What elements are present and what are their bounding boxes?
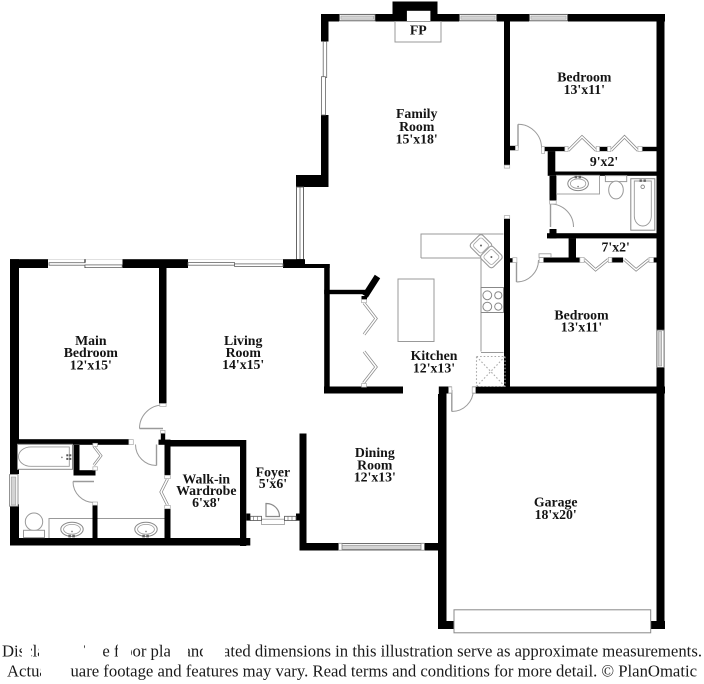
svg-text:13'x11': 13'x11' [564,82,605,97]
svg-text:12'x13': 12'x13' [413,360,455,375]
svg-text:13'x11': 13'x11' [561,320,602,335]
svg-text:12'x13': 12'x13' [354,470,396,485]
svg-text:14'x15': 14'x15' [222,357,264,372]
svg-text:Actual square footage and feat: Actual square footage and features may v… [7,662,697,681]
svg-text:9'x2': 9'x2' [590,154,618,169]
svg-text:FP: FP [410,23,427,38]
svg-text:12'x15': 12'x15' [70,357,112,372]
svg-text:5'x6': 5'x6' [259,476,287,491]
svg-text:18'x20': 18'x20' [535,507,577,522]
svg-text:Disclaimer: The floor plan and: Disclaimer: The floor plan and stated di… [2,642,702,661]
svg-text:6'x8': 6'x8' [192,495,220,510]
svg-text:7'x2': 7'x2' [602,240,630,255]
svg-text:15'x18': 15'x18' [396,132,438,147]
